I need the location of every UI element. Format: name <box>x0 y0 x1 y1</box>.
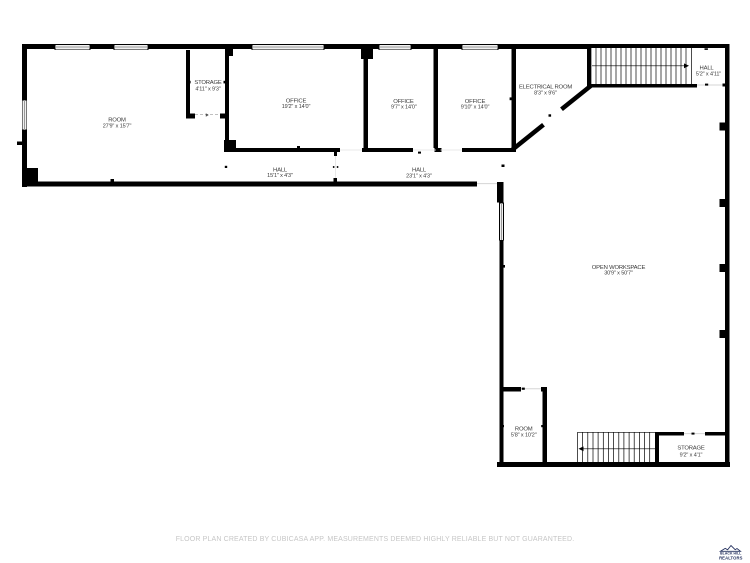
svg-text:30'9" x 50'7": 30'9" x 50'7" <box>604 271 633 277</box>
svg-text:STORAGE: STORAGE <box>677 446 705 452</box>
svg-text:15'1" x 4'3": 15'1" x 4'3" <box>267 173 293 179</box>
svg-text:9'2" x 4'1": 9'2" x 4'1" <box>680 453 703 459</box>
svg-text:STORAGE: STORAGE <box>194 80 222 86</box>
svg-text:9'10" x 14'0": 9'10" x 14'0" <box>461 104 490 110</box>
svg-text:ELECTRICAL ROOM: ELECTRICAL ROOM <box>519 84 572 90</box>
svg-text:FLOOR PLAN CREATED BY CUBICASA: FLOOR PLAN CREATED BY CUBICASA APP. MEAS… <box>176 536 575 543</box>
svg-text:5'2" x 4'11": 5'2" x 4'11" <box>696 71 721 77</box>
svg-text:5'8" x 10'2": 5'8" x 10'2" <box>511 432 537 438</box>
svg-text:27'9" x 15'7": 27'9" x 15'7" <box>103 124 132 130</box>
svg-text:ROOM: ROOM <box>108 117 126 123</box>
svg-text:23'1" x 4'3": 23'1" x 4'3" <box>406 173 432 179</box>
svg-text:8'3" x 9'6": 8'3" x 9'6" <box>534 90 557 96</box>
svg-text:19'2" x 14'0": 19'2" x 14'0" <box>282 104 311 110</box>
svg-text:4'11" x 9'3": 4'11" x 9'3" <box>195 86 220 92</box>
svg-text:9'7" x 14'0": 9'7" x 14'0" <box>391 104 417 110</box>
svg-text:REALTORS: REALTORS <box>719 555 743 560</box>
